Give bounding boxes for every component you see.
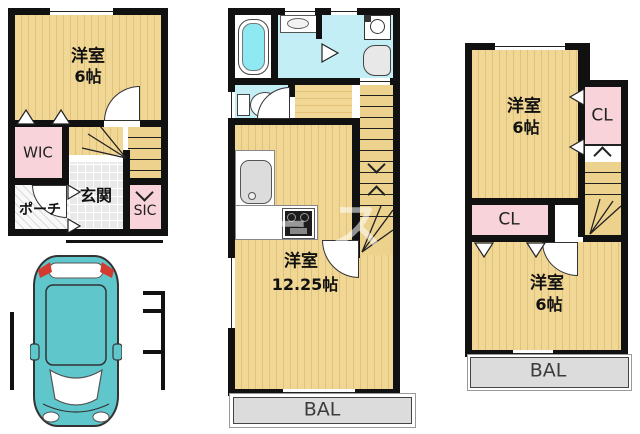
- wall: [393, 8, 400, 396]
- porch-label: ポーチ: [19, 203, 61, 217]
- stairs-floor1: [128, 127, 161, 178]
- parking-fence: [161, 291, 165, 390]
- wic-label: WIC: [23, 146, 53, 161]
- stair-hall-floor3: [555, 205, 578, 235]
- parking-wall: [10, 312, 14, 390]
- wall: [465, 198, 578, 205]
- stair-landing-floor2: [295, 85, 352, 118]
- window: [228, 258, 235, 328]
- washing-machine-drum: [370, 19, 385, 34]
- room-label: 洋室: [530, 276, 564, 293]
- window: [228, 92, 235, 118]
- wall: [8, 120, 168, 127]
- wall: [123, 150, 130, 236]
- car-icon: [30, 252, 122, 430]
- wall: [8, 229, 168, 236]
- parking-fence-tick: [143, 291, 161, 295]
- wall: [548, 198, 555, 242]
- wall: [8, 178, 69, 185]
- stove-grill: [290, 228, 307, 234]
- room-size-label: 6帖: [512, 120, 539, 136]
- kitchen-faucet: [248, 192, 256, 200]
- room-size-label: 12.25帖: [272, 277, 339, 293]
- parking-fence-tick: [143, 309, 161, 313]
- stove-burner: [287, 213, 296, 222]
- wall: [271, 15, 278, 85]
- window: [50, 8, 113, 15]
- parking-boundary-line: [66, 240, 163, 243]
- hallway-floor1: [69, 125, 123, 155]
- kitchen-sink-icon: [240, 160, 272, 204]
- genkan-label: 玄関: [80, 188, 112, 204]
- stairs-winder-floor2: [360, 225, 393, 255]
- door-opening: [104, 120, 140, 127]
- room-size-label: 6帖: [74, 69, 101, 85]
- floorplan-canvas: 洋室 6帖 WIC 玄関 ポーチ SIC: [0, 0, 640, 434]
- wash-basin-icon: [363, 45, 391, 76]
- vanity-basin: [287, 18, 309, 29]
- sic-label: SIC: [134, 204, 157, 218]
- room-label: 洋室: [507, 99, 541, 116]
- wall: [228, 118, 360, 125]
- balcony-label: BAL: [530, 362, 567, 381]
- wall: [578, 50, 585, 237]
- stairs-winder-floor3: [585, 202, 621, 235]
- stairs-floor3: [585, 162, 621, 202]
- window: [331, 8, 357, 15]
- wall: [583, 235, 628, 242]
- wall: [228, 8, 235, 396]
- parking-fence-tick: [143, 350, 161, 354]
- closet-label: CL: [498, 212, 519, 229]
- wall: [621, 80, 628, 357]
- room-label: 洋室: [284, 254, 318, 271]
- closet-label: CL: [591, 108, 612, 125]
- wall: [352, 118, 360, 258]
- window: [495, 43, 565, 50]
- window: [360, 78, 390, 85]
- bathtub-water: [242, 23, 265, 71]
- balcony-label: BAL: [304, 401, 341, 420]
- room-label: 洋室: [71, 49, 105, 66]
- washing-machine-corner: [365, 16, 371, 22]
- wall: [465, 235, 548, 242]
- room-size-label: 6帖: [535, 297, 562, 313]
- stove-burner: [300, 213, 309, 222]
- window: [285, 8, 315, 15]
- wall: [316, 15, 322, 39]
- toilet-tank: [237, 94, 250, 116]
- wall: [62, 120, 69, 185]
